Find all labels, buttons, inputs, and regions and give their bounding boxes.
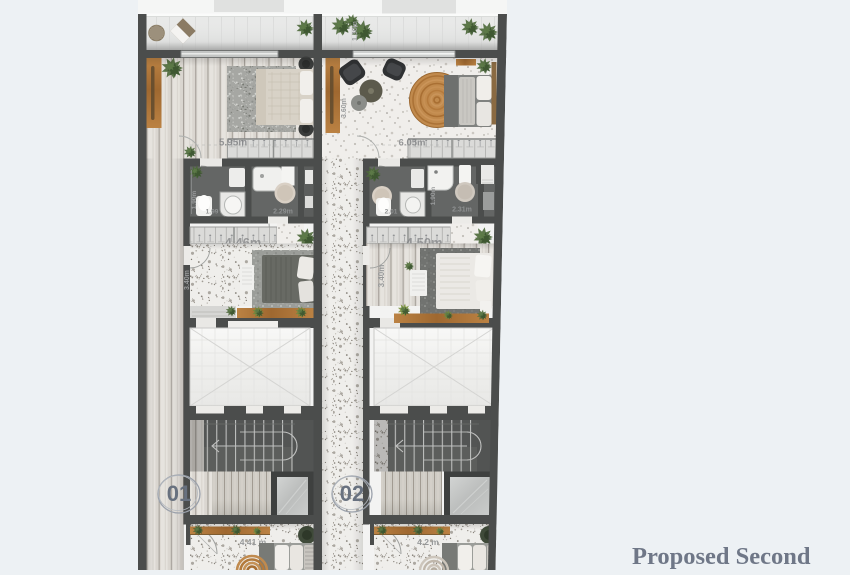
svg-text:3.40m: 3.40m <box>377 265 386 288</box>
svg-text:01: 01 <box>167 481 191 506</box>
svg-text:6.05m: 6.05m <box>399 138 426 149</box>
svg-text:1.90m: 1.90m <box>430 187 437 206</box>
svg-text:1.90m: 1.90m <box>191 191 198 210</box>
svg-text:2.01: 2.01 <box>385 209 398 216</box>
svg-text:4.2 m: 4.2 m <box>417 537 439 547</box>
svg-text:3.40m: 3.40m <box>184 270 191 290</box>
svg-text:3.60m: 3.60m <box>341 98 348 118</box>
svg-text:1.30m: 1.30m <box>352 21 359 41</box>
svg-text:Proposed Second: Proposed Second <box>632 543 811 570</box>
svg-text:2.31m: 2.31m <box>452 207 472 214</box>
svg-text:02: 02 <box>340 481 364 506</box>
svg-text:1.99: 1.99 <box>206 209 219 216</box>
svg-text:2.29m: 2.29m <box>273 209 293 216</box>
svg-text:5.95m: 5.95m <box>219 138 247 149</box>
